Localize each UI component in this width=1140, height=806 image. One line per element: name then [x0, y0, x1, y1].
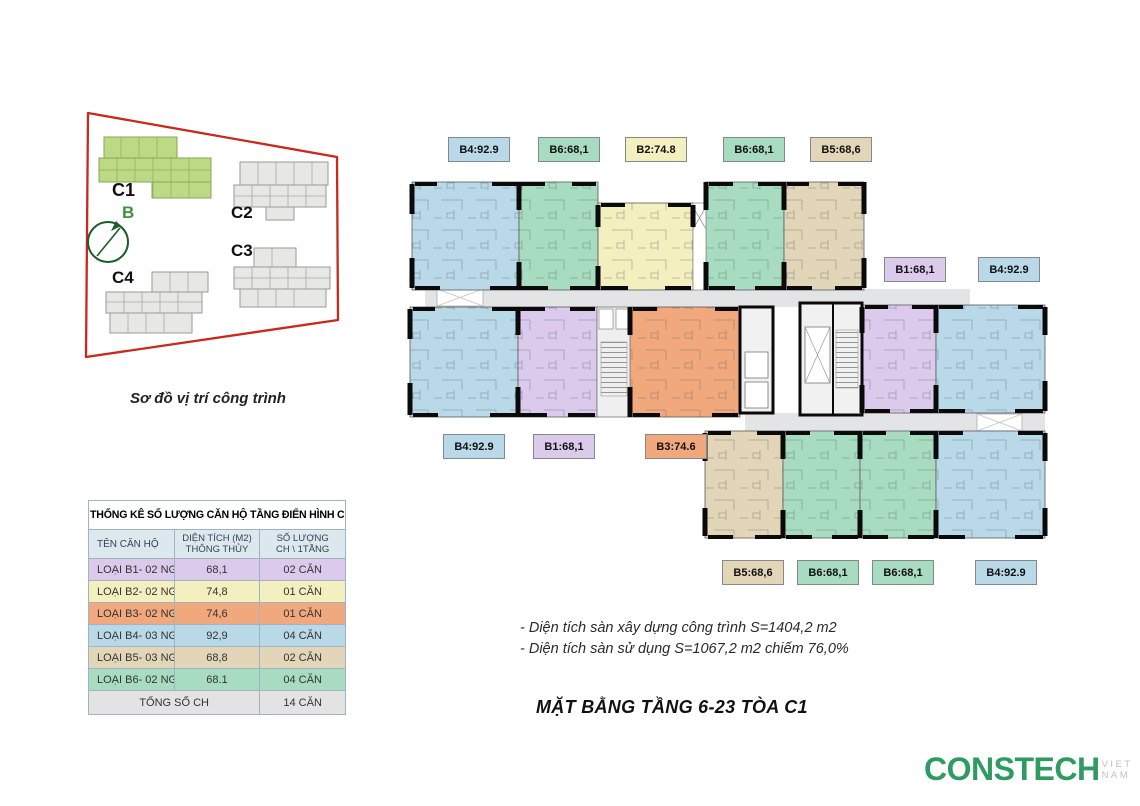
total-value: 14 CĂN — [260, 691, 346, 715]
logo-suffix: VIET NAM — [1102, 759, 1140, 786]
stair-core — [597, 307, 630, 417]
table-header-row: TÊN CĂN HỘ DIỆN TÍCH (M2) THÔNG THỦY SỐ … — [89, 530, 346, 559]
count-cell: 01 CĂN — [260, 581, 346, 603]
service-core-right — [800, 303, 862, 415]
unit-label-b5: B5:68,6 — [810, 137, 872, 162]
table-row: LOẠI B4- 03 NGỦ 92,9 04 CĂN — [89, 625, 346, 647]
note-line: - Diện tích sàn xây dựng công trình S=14… — [520, 618, 849, 639]
table-row: LOẠI B5- 03 NGỦ 68,8 02 CĂN — [89, 647, 346, 669]
building-label-c3: C3 — [231, 241, 253, 261]
unit-label-b4: B4:92.9 — [448, 137, 510, 162]
area-notes: - Diện tích sàn xây dựng công trình S=14… — [520, 618, 849, 660]
shaft-icon — [977, 414, 1022, 431]
area-cell: 92,9 — [174, 625, 260, 647]
area-cell: 68,1 — [174, 559, 260, 581]
unit-label-b2: B2:74.8 — [625, 137, 687, 162]
unit-type-cell: LOẠI B5- 03 NGỦ — [89, 647, 175, 669]
corridor-upper — [425, 289, 970, 307]
unit-type-cell: LOẠI B4- 03 NGỦ — [89, 625, 175, 647]
note-line: - Diện tích sàn sử dụng S=1067,2 m2 chiế… — [520, 639, 849, 660]
unit-label-b4: B4:92.9 — [978, 257, 1040, 282]
table-row: LOẠI B2- 02 NGỦ+ 74,8 01 CĂN — [89, 581, 346, 603]
area-cell: 68,8 — [174, 647, 260, 669]
col-header-count-line1: SỐ LƯỢNG — [277, 533, 329, 544]
col-header-area-line1: DIỆN TÍCH (M2) — [182, 533, 252, 544]
table-row: LOẠI B3- 02 NGỦ+ 74,6 01 CĂN — [89, 603, 346, 625]
table-row: LOẠI B6- 02 NGỦ 68.1 04 CĂN — [89, 669, 346, 691]
unit-type-cell: LOẠI B2- 02 NGỦ+ — [89, 581, 175, 603]
constech-logo: CONSTECH VIET NAM — [924, 752, 1140, 786]
count-cell: 02 CĂN — [260, 647, 346, 669]
floor-plan — [410, 182, 1045, 538]
unit-label-b6: B6:68,1 — [723, 137, 785, 162]
unit-label-b1: B1:68,1 — [533, 434, 595, 459]
count-cell: 04 CĂN — [260, 669, 346, 691]
logo-brand: CONSTECH — [924, 752, 1100, 786]
unit-label-b6: B6:68,1 — [538, 137, 600, 162]
table-total-row: TỔNG SỐ CH 14 CĂN — [89, 691, 346, 715]
floorplan-sheet: B4:92.9 B6:68,1 B2:74.8 B6:68,1 B5:68,6 … — [0, 0, 1140, 806]
unit-stats-table: THỐNG KÊ SỐ LƯỢNG CĂN HỘ TẦNG ĐIỂN HÌNH … — [88, 500, 346, 715]
total-label: TỔNG SỐ CH — [89, 691, 260, 715]
unit-label-b6: B6:68,1 — [797, 560, 859, 585]
compass-icon — [88, 221, 128, 262]
site-map-caption: Sơ đồ vị trí công trình — [123, 390, 293, 407]
unit-type-cell: LOẠI B6- 02 NGỦ — [89, 669, 175, 691]
unit-label-b5: B5:68,6 — [722, 560, 784, 585]
col-header-count-line2: CH \ 1TẦNG — [276, 544, 329, 555]
room-detail-overlay — [410, 182, 1045, 538]
col-header-count: SỐ LƯỢNG CH \ 1TẦNG — [260, 530, 346, 559]
area-cell: 74,6 — [174, 603, 260, 625]
unit-label-b6: B6:68,1 — [872, 560, 934, 585]
building-label-c1: C1 — [112, 180, 135, 201]
col-header-area: DIỆN TÍCH (M2) THÔNG THỦY — [174, 530, 260, 559]
area-cell: 74,8 — [174, 581, 260, 603]
area-cell: 68.1 — [174, 669, 260, 691]
count-cell: 04 CĂN — [260, 625, 346, 647]
unit-label-b4: B4:92.9 — [443, 434, 505, 459]
col-header-name: TÊN CĂN HỘ — [89, 530, 175, 559]
table-title: THỐNG KÊ SỐ LƯỢNG CĂN HỘ TẦNG ĐIỂN HÌNH … — [89, 501, 346, 530]
unit-label-b3: B3:74.6 — [645, 434, 707, 459]
shaft-icon — [437, 289, 483, 306]
count-cell: 01 CĂN — [260, 603, 346, 625]
count-cell: 02 CĂN — [260, 559, 346, 581]
building-label-c2: C2 — [231, 203, 253, 223]
service-core-left — [740, 307, 773, 413]
north-label: B — [122, 203, 134, 223]
unit-label-b4: B4:92.9 — [975, 560, 1037, 585]
building-label-c4: C4 — [112, 268, 134, 288]
unit-type-cell: LOẠI B3- 02 NGỦ+ — [89, 603, 175, 625]
site-map — [86, 113, 338, 357]
unit-label-b1: B1:68,1 — [884, 257, 946, 282]
col-header-area-line2: THÔNG THỦY — [186, 544, 249, 555]
page-title: MẶT BẰNG TẦNG 6-23 TÒA C1 — [536, 697, 808, 718]
table-row: LOẠI B1- 02 NGỦ 68,1 02 CĂN — [89, 559, 346, 581]
unit-type-cell: LOẠI B1- 02 NGỦ — [89, 559, 175, 581]
